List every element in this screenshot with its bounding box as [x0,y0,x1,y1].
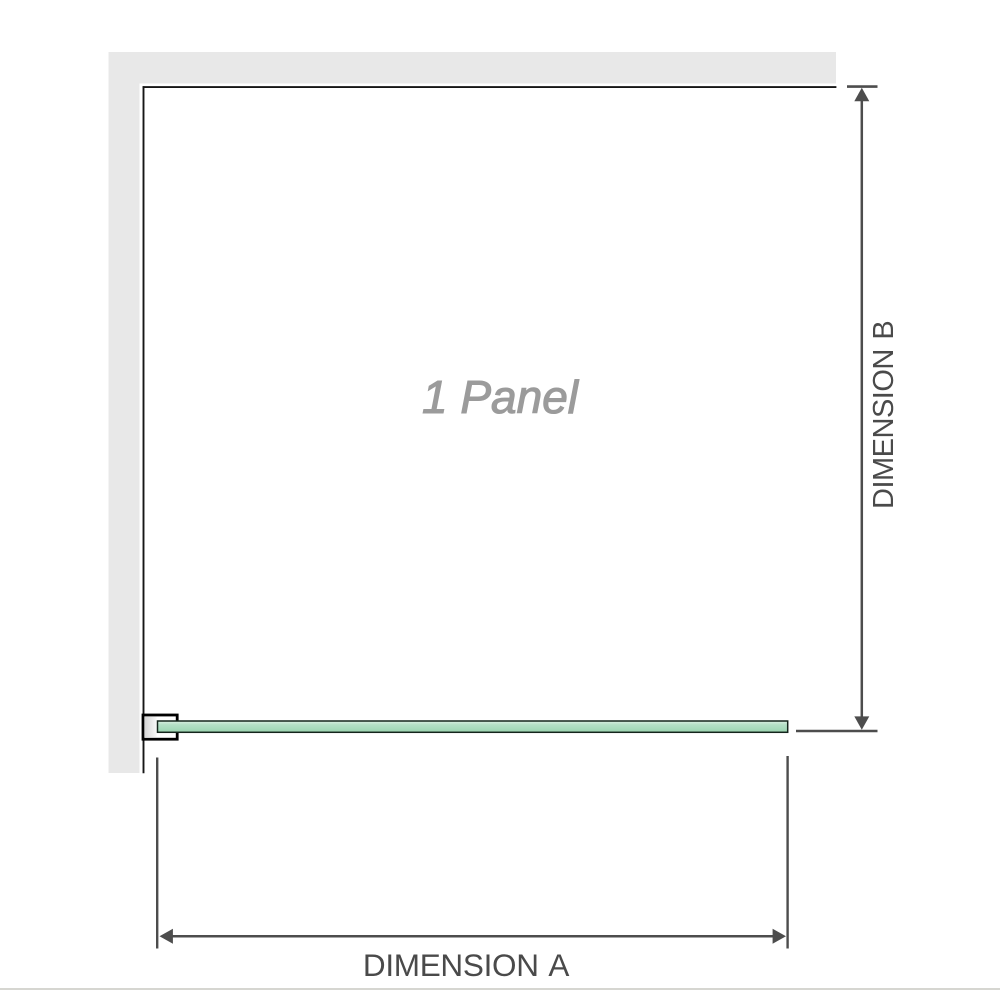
svg-text:1 Panel: 1 Panel [422,371,580,423]
svg-text:DIMENSION B: DIMENSION B [868,321,900,509]
svg-text:DIMENSION A: DIMENSION A [363,947,570,983]
